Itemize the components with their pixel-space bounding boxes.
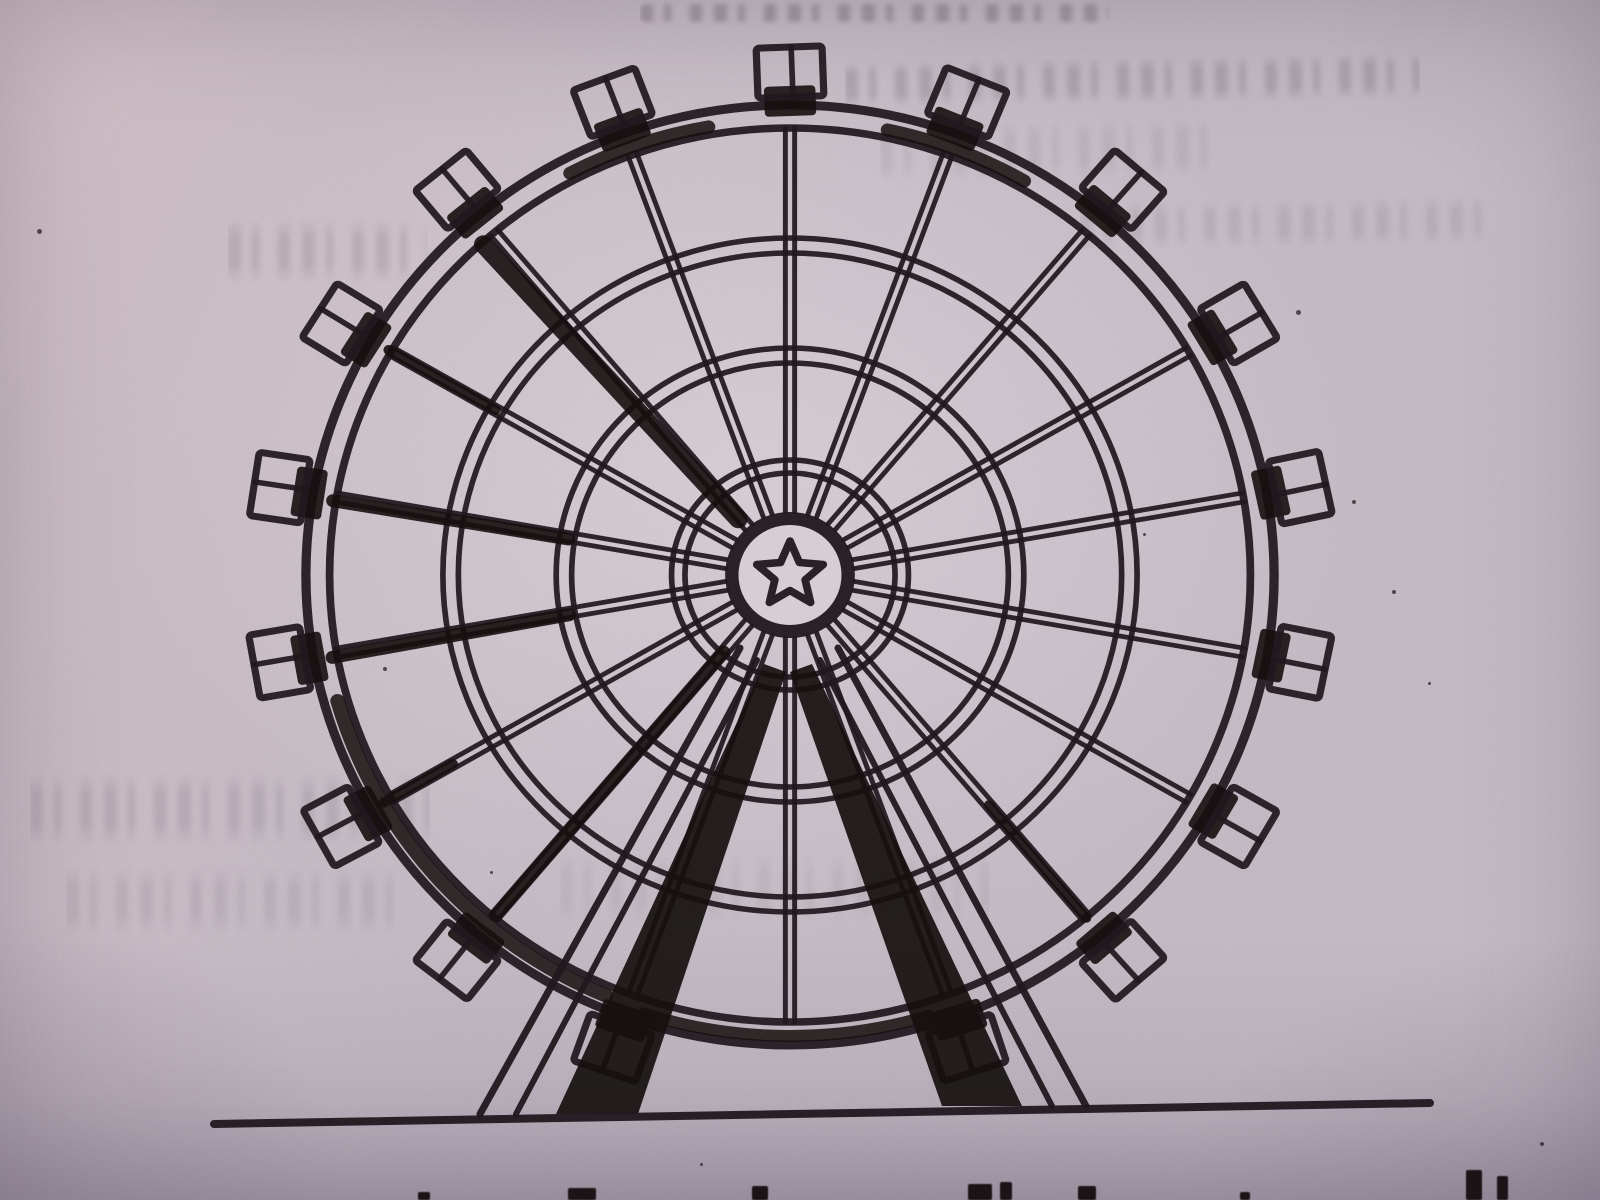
paper-grain — [0, 0, 1600, 1200]
book-page-photo — [0, 0, 1600, 1200]
